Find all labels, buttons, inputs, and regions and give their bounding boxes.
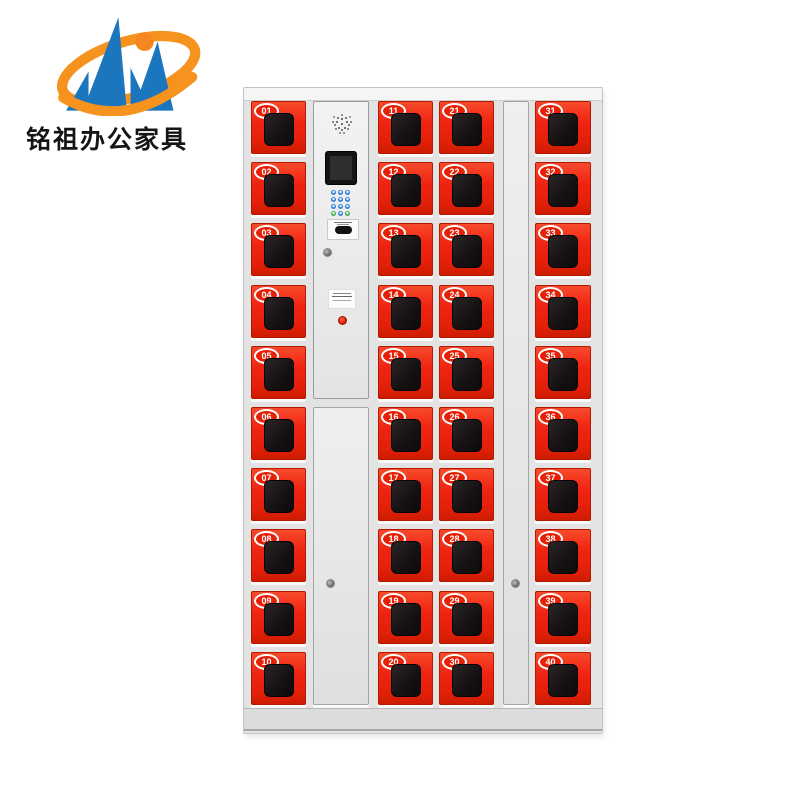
locker-door-27[interactable]: 27 <box>439 468 494 521</box>
locker-door-26[interactable]: 26 <box>439 407 494 460</box>
locker-door-18[interactable]: 18 <box>378 529 433 582</box>
locker-door-37[interactable]: 37 <box>535 468 591 521</box>
locker-window <box>391 480 421 513</box>
brand-logo: 铭祖办公家具 <box>26 12 226 156</box>
locker-door-04[interactable]: 04 <box>251 285 306 338</box>
locker-window <box>452 235 482 268</box>
locker-window <box>264 419 294 452</box>
locker-window <box>264 541 294 574</box>
locker-column-2: 11 12 13 14 15 16 17 18 19 20 <box>378 101 433 705</box>
locker-window <box>391 113 421 146</box>
keypad <box>331 190 350 216</box>
locker-window <box>548 358 578 391</box>
locker-window <box>264 603 294 636</box>
locker-door-23[interactable]: 23 <box>439 223 494 276</box>
locker-door-14[interactable]: 14 <box>378 285 433 338</box>
control-column <box>313 101 369 705</box>
reader-label-text <box>334 222 352 223</box>
locker-window <box>548 174 578 207</box>
locker-cabinet: 01 02 03 04 05 06 07 08 09 10 <box>243 87 603 734</box>
control-lower-door[interactable] <box>313 407 369 705</box>
brand-logo-icon <box>40 12 208 116</box>
brand-name: 铭祖办公家具 <box>26 120 226 156</box>
locker-window <box>452 664 482 697</box>
locker-window <box>264 174 294 207</box>
locker-window <box>452 603 482 636</box>
keypad-button[interactable] <box>345 211 350 216</box>
keypad-button[interactable] <box>331 190 336 195</box>
keyhole-icon <box>326 579 335 588</box>
locker-door-39[interactable]: 39 <box>535 591 591 644</box>
locker-door-33[interactable]: 33 <box>535 223 591 276</box>
locker-window <box>452 358 482 391</box>
locker-window <box>391 297 421 330</box>
screen-display <box>330 156 352 180</box>
locker-door-22[interactable]: 22 <box>439 162 494 215</box>
keypad-button[interactable] <box>345 197 350 202</box>
locker-door-28[interactable]: 28 <box>439 529 494 582</box>
locker-door-38[interactable]: 38 <box>535 529 591 582</box>
locker-window <box>391 603 421 636</box>
keypad-button[interactable] <box>338 204 343 209</box>
keypad-button[interactable] <box>338 211 343 216</box>
locker-window <box>548 541 578 574</box>
locker-door-40[interactable]: 40 <box>535 652 591 705</box>
keypad-button[interactable] <box>331 197 336 202</box>
side-panel-column <box>503 101 529 705</box>
locker-window <box>391 358 421 391</box>
locker-door-25[interactable]: 25 <box>439 346 494 399</box>
locker-door-21[interactable]: 21 <box>439 101 494 154</box>
locker-door-11[interactable]: 11 <box>378 101 433 154</box>
product-photo-smart-locker: 铭祖办公家具 01 02 03 04 05 06 07 08 09 <box>0 0 800 800</box>
locker-window <box>452 113 482 146</box>
keyhole-icon <box>511 579 520 588</box>
speaker-grille-icon <box>341 123 343 125</box>
locker-door-31[interactable]: 31 <box>535 101 591 154</box>
locker-door-20[interactable]: 20 <box>378 652 433 705</box>
locker-door-34[interactable]: 34 <box>535 285 591 338</box>
locker-door-36[interactable]: 36 <box>535 407 591 460</box>
locker-window <box>452 174 482 207</box>
locker-window <box>548 297 578 330</box>
locker-door-03[interactable]: 03 <box>251 223 306 276</box>
keypad-button[interactable] <box>331 211 336 216</box>
keypad-button[interactable] <box>338 190 343 195</box>
status-indicator-light <box>338 316 347 325</box>
locker-window <box>391 541 421 574</box>
instruction-label <box>328 289 356 309</box>
locker-door-05[interactable]: 05 <box>251 346 306 399</box>
card-reader[interactable] <box>327 219 359 240</box>
locker-door-32[interactable]: 32 <box>535 162 591 215</box>
locker-window <box>264 235 294 268</box>
locker-door-09[interactable]: 09 <box>251 591 306 644</box>
keypad-button[interactable] <box>331 204 336 209</box>
locker-door-06[interactable]: 06 <box>251 407 306 460</box>
touchscreen[interactable] <box>325 151 357 185</box>
locker-window <box>391 664 421 697</box>
locker-door-17[interactable]: 17 <box>378 468 433 521</box>
locker-door-07[interactable]: 07 <box>251 468 306 521</box>
locker-window <box>548 113 578 146</box>
locker-door-35[interactable]: 35 <box>535 346 591 399</box>
locker-door-15[interactable]: 15 <box>378 346 433 399</box>
control-panel <box>313 101 369 399</box>
locker-window <box>548 603 578 636</box>
locker-window <box>264 113 294 146</box>
card-reader-slot-icon <box>335 226 352 234</box>
locker-door-02[interactable]: 02 <box>251 162 306 215</box>
locker-door-12[interactable]: 12 <box>378 162 433 215</box>
locker-door-08[interactable]: 08 <box>251 529 306 582</box>
locker-door-10[interactable]: 10 <box>251 652 306 705</box>
locker-window <box>452 297 482 330</box>
locker-window <box>391 235 421 268</box>
locker-window <box>452 419 482 452</box>
locker-window <box>452 480 482 513</box>
keypad-button[interactable] <box>338 197 343 202</box>
locker-window <box>264 480 294 513</box>
keypad-button[interactable] <box>345 190 350 195</box>
keyhole-icon <box>323 248 332 257</box>
locker-window <box>391 174 421 207</box>
cabinet-top-panel <box>244 88 602 101</box>
cabinet-base <box>244 708 602 731</box>
locker-window <box>264 297 294 330</box>
locker-door-19[interactable]: 19 <box>378 591 433 644</box>
locker-window <box>452 541 482 574</box>
locker-door-01[interactable]: 01 <box>251 101 306 154</box>
locker-door-30[interactable]: 30 <box>439 652 494 705</box>
locker-column-4: 31 32 33 34 35 36 37 38 39 40 <box>535 101 591 705</box>
locker-window <box>548 419 578 452</box>
locker-door-16[interactable]: 16 <box>378 407 433 460</box>
locker-window <box>548 480 578 513</box>
locker-window <box>264 664 294 697</box>
locker-window <box>548 235 578 268</box>
keypad-button[interactable] <box>345 204 350 209</box>
locker-door-13[interactable]: 13 <box>378 223 433 276</box>
side-panel-door[interactable] <box>503 101 529 705</box>
locker-column-1: 01 02 03 04 05 06 07 08 09 10 <box>251 101 306 705</box>
locker-window <box>548 664 578 697</box>
locker-door-29[interactable]: 29 <box>439 591 494 644</box>
locker-door-24[interactable]: 24 <box>439 285 494 338</box>
locker-window <box>391 419 421 452</box>
locker-window <box>264 358 294 391</box>
locker-column-3: 21 22 23 24 25 26 27 28 29 30 <box>439 101 494 705</box>
